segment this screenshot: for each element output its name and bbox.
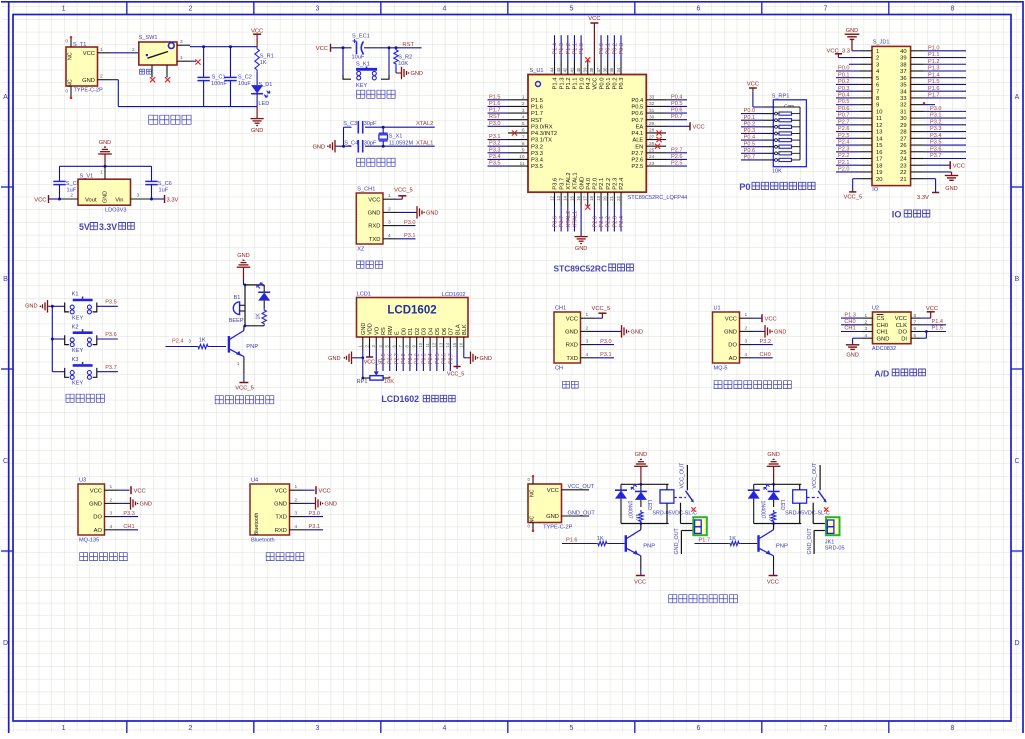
svg-text:P3.4: P3.4 [489,154,501,160]
svg-text:DO: DO [93,515,102,521]
svg-text:9: 9 [876,103,879,109]
svg-text:P1.0: P1.0 [579,43,585,55]
svg-text:P0.7: P0.7 [838,113,850,119]
svg-text:P0.4: P0.4 [671,94,683,100]
svg-text:GND: GND [575,246,587,252]
svg-text:2: 2 [388,206,391,212]
svg-text:P2.1: P2.1 [599,178,605,190]
svg-text:6: 6 [696,6,700,13]
svg-text:P3.2: P3.2 [531,144,543,150]
svg-text:C: C [1014,458,1019,465]
svg-text:P2.5: P2.5 [381,353,387,364]
svg-text:PNP: PNP [643,543,655,549]
svg-text:17: 17 [583,195,588,200]
svg-text:2: 2 [110,497,113,503]
svg-text:29: 29 [649,121,655,127]
svg-text:VCC_OUT: VCC_OUT [812,462,818,488]
svg-text:JK1: JK1 [825,539,835,545]
svg-text:35: 35 [900,83,906,89]
svg-text:TYPE-C-2P: TYPE-C-2P [543,525,572,531]
svg-text:8: 8 [950,6,954,13]
svg-text:20: 20 [876,177,882,183]
svg-text:P1.4: P1.4 [553,77,559,90]
svg-text:P2.6: P2.6 [671,154,683,160]
svg-text:3: 3 [388,220,391,226]
svg-text:12: 12 [432,342,437,347]
svg-text:CH0: CH0 [844,319,855,325]
svg-text:A: A [3,94,8,101]
svg-text:23: 23 [649,161,655,167]
svg-text:D0: D0 [401,328,407,335]
svg-text:P2.5: P2.5 [671,161,683,167]
svg-text:P2.0: P2.0 [592,216,598,228]
svg-text:P0.2: P0.2 [613,78,619,90]
svg-text:P2.7: P2.7 [838,119,850,125]
svg-text:P3.6: P3.6 [553,178,559,190]
svg-text:P1.1: P1.1 [928,52,940,58]
svg-text:6: 6 [914,326,917,332]
svg-text:21: 21 [900,177,906,183]
svg-text:GND: GND [103,191,109,203]
svg-text:S_U1: S_U1 [530,68,544,74]
svg-text:P2.0: P2.0 [593,178,599,190]
svg-text:P3.7: P3.7 [105,365,117,371]
svg-text:P0.2: P0.2 [612,43,618,55]
svg-text:P0.1: P0.1 [606,43,612,55]
svg-text:P1.7: P1.7 [928,93,940,99]
svg-text:1: 1 [586,312,589,318]
svg-text:1: 1 [237,361,240,367]
svg-text:11: 11 [876,116,882,122]
svg-text:P2.3: P2.3 [838,146,850,152]
svg-text:VCC: VCC [588,16,600,22]
svg-text:RXD: RXD [566,343,578,349]
svg-text:8: 8 [950,725,954,732]
svg-text:1K: 1K [256,313,262,320]
svg-text:GND: GND [579,177,585,190]
svg-text:GND: GND [565,330,578,336]
svg-text:P0.7: P0.7 [671,114,683,120]
svg-text:27: 27 [649,134,655,140]
svg-text:P1.7: P1.7 [531,111,543,117]
svg-text:P3.0/RX: P3.0/RX [531,124,553,130]
svg-text:P0.0: P0.0 [599,43,605,55]
svg-text:10K: 10K [398,61,408,67]
svg-text:P3.5: P3.5 [930,140,942,146]
svg-text:GND_OUT: GND_OUT [568,510,596,516]
svg-text:S_V1: S_V1 [80,174,94,180]
svg-text:P1.5: P1.5 [531,98,543,104]
svg-text:44: 44 [549,67,554,72]
svg-text:P1.0: P1.0 [928,45,940,51]
svg-text:VCC: VCC [953,163,965,169]
svg-text:GND: GND [99,140,111,146]
svg-text:34: 34 [616,67,621,72]
svg-text:1uF: 1uF [67,188,77,194]
svg-text:1: 1 [180,55,183,61]
svg-text:3: 3 [295,511,298,517]
svg-text:36: 36 [603,67,608,72]
svg-text:VCC_5: VCC_5 [235,386,254,392]
svg-text:P1.7: P1.7 [699,537,711,543]
svg-text:P0.5: P0.5 [744,141,756,147]
svg-text:1: 1 [522,95,525,101]
svg-text:100nF: 100nF [211,81,227,87]
svg-text:P1.1: P1.1 [573,78,579,90]
svg-text:CH0: CH0 [877,323,889,329]
svg-text:P0.2: P0.2 [415,353,421,364]
svg-text:P2.6: P2.6 [631,158,643,164]
svg-text:14: 14 [876,136,883,142]
svg-text:GND_OUT: GND_OUT [807,527,813,554]
svg-text:P2.7: P2.7 [631,151,643,157]
svg-text:P2.3: P2.3 [613,178,619,190]
svg-text:14: 14 [563,195,568,200]
svg-text:8: 8 [876,96,879,102]
svg-text:P3.0: P3.0 [489,121,501,127]
svg-text:P0.6: P0.6 [744,148,756,154]
svg-text:P2.5: P2.5 [631,164,643,170]
svg-text:P2.2: P2.2 [838,153,850,159]
svg-text:CH: CH [555,366,563,372]
svg-text:3.3V: 3.3V [917,195,929,201]
svg-text:P1.6: P1.6 [489,101,501,107]
svg-text:VCC: VCC [316,46,328,52]
svg-text:S_C6: S_C6 [158,181,172,187]
svg-text:GND: GND [631,330,643,336]
svg-text:Bluetooth: Bluetooth [251,538,275,544]
svg-text:VDD: VDD [368,323,374,335]
svg-text:P0.3: P0.3 [744,128,756,134]
svg-text:41: 41 [569,67,574,72]
svg-text:P0.3: P0.3 [619,78,625,90]
svg-text:2: 2 [522,101,525,107]
svg-text:SRD-05VDC-SL-C: SRD-05VDC-SL-C [785,510,830,516]
svg-text:VCC: VCC [693,125,705,131]
svg-text:25: 25 [649,148,655,154]
svg-text:P1.7: P1.7 [489,108,501,114]
svg-text:S_K1: S_K1 [356,61,370,67]
svg-text:P2.7: P2.7 [394,353,400,364]
svg-text:XZ: XZ [357,247,365,253]
svg-text:IO: IO [872,187,879,193]
svg-text:P1.3: P1.3 [559,43,565,55]
svg-text:2: 2 [745,325,748,331]
svg-text:S_EC1: S_EC1 [352,34,370,40]
svg-text:D: D [3,640,8,647]
svg-text:P2.5: P2.5 [838,133,850,139]
svg-text:P1.2: P1.2 [566,78,572,90]
svg-text:P4.0: P4.0 [586,178,592,190]
svg-text:10: 10 [876,109,882,115]
svg-text:38: 38 [900,62,906,68]
svg-text:S_SW1: S_SW1 [139,35,158,41]
svg-text:4: 4 [388,233,391,239]
svg-text:2: 2 [188,6,192,13]
svg-text:S_C1: S_C1 [212,74,226,80]
svg-text:Vout: Vout [85,198,97,204]
svg-text:GND: GND [328,356,340,362]
svg-text:22: 22 [616,195,621,200]
svg-text:39: 39 [583,67,588,72]
svg-text:U1: U1 [714,306,721,312]
svg-text:STC89C52RC_LQFP44: STC89C52RC_LQFP44 [628,195,688,201]
svg-text:CH1: CH1 [123,524,134,530]
svg-text:GND: GND [767,452,779,458]
svg-text:P0.3: P0.3 [838,86,850,92]
svg-text:VCC: VCC [90,488,102,494]
svg-text:VCC: VCC [566,316,578,322]
svg-text:IO: IO [892,210,902,220]
svg-text:D: D [1014,640,1019,647]
svg-text:P0.5: P0.5 [671,101,683,107]
svg-text:16: 16 [576,195,581,200]
svg-text:2: 2 [865,320,868,326]
svg-text:P2.4: P2.4 [619,216,625,228]
svg-text:3: 3 [745,339,748,345]
svg-text:RS: RS [381,327,387,335]
svg-text:40: 40 [900,49,906,55]
svg-text:GND: GND [325,502,337,508]
svg-text:P0.5: P0.5 [838,99,850,105]
svg-text:4: 4 [745,352,748,358]
svg-text:LCD1602: LCD1602 [387,305,436,317]
svg-text:S_C4: S_C4 [344,141,358,147]
svg-text:P4.1: P4.1 [631,131,643,137]
svg-text:P3.3: P3.3 [930,126,942,132]
svg-text:2: 2 [188,725,192,732]
svg-text:U3: U3 [79,478,86,484]
svg-text:BEEP: BEEP [229,318,244,324]
svg-text:P1.5: P1.5 [928,79,940,85]
svg-text:26: 26 [649,141,655,147]
svg-text:KEY: KEY [356,83,367,89]
svg-text:GND: GND [877,336,890,342]
svg-text:P1.4: P1.4 [553,43,559,55]
svg-text:30pF: 30pF [364,121,377,127]
svg-text:S_JD1: S_JD1 [873,40,890,46]
svg-text:MQ-5: MQ-5 [714,366,728,372]
svg-text:GND: GND [774,330,786,336]
svg-text:4: 4 [110,524,113,530]
svg-text:4: 4 [865,333,868,339]
svg-text:P2.4: P2.4 [619,177,625,190]
svg-text:P0.5: P0.5 [435,353,441,364]
svg-text:GND: GND [426,211,438,217]
svg-text:P0.6: P0.6 [631,111,643,117]
svg-text:P2.7: P2.7 [671,147,683,153]
svg-text:CS: CS [877,316,885,322]
svg-text:P0.4: P0.4 [428,353,434,364]
svg-text:4: 4 [586,352,589,358]
svg-text:GND: GND [274,502,287,508]
svg-text:S_C2: S_C2 [238,74,252,80]
svg-text:A/D: A/D [874,368,889,378]
svg-text:8: 8 [522,141,525,147]
svg-text:VO: VO [374,326,380,335]
svg-text:3: 3 [180,39,183,45]
svg-text:RP1: RP1 [357,379,368,385]
svg-text:40: 40 [576,67,581,72]
svg-text:27: 27 [900,136,906,142]
svg-text:3: 3 [865,326,868,332]
svg-text:VCC: VCC [767,580,779,586]
svg-text:XTAL2: XTAL2 [566,211,572,228]
svg-text:B: B [1015,276,1020,283]
svg-text:D3: D3 [422,328,428,335]
svg-text:XTAL1: XTAL1 [572,211,578,228]
svg-text:P1.3: P1.3 [844,312,856,318]
svg-text:S_CH1: S_CH1 [357,187,375,193]
svg-text:P0.0: P0.0 [744,108,756,114]
svg-text:3: 3 [315,6,319,13]
svg-text:E: E [395,331,401,335]
svg-text:39: 39 [900,56,906,62]
svg-text:20: 20 [603,195,608,200]
svg-text:LDO3V3: LDO3V3 [105,208,126,214]
svg-text:D2: D2 [415,328,421,335]
svg-text:10uF: 10uF [352,55,365,61]
svg-text:P0.5: P0.5 [631,105,643,111]
svg-text:1uF: 1uF [159,188,169,194]
svg-text:TXD: TXD [566,356,578,362]
svg-text:VCC: VCC [83,51,95,57]
svg-text:B1: B1 [234,295,241,301]
svg-text:P0.7: P0.7 [631,118,643,124]
svg-text:P1.4: P1.4 [932,319,944,325]
svg-text:XTAL2: XTAL2 [566,172,572,189]
svg-text:GND: GND [546,514,559,520]
svg-text:5: 5 [569,725,573,732]
svg-text:3: 3 [137,193,140,199]
svg-text:P4.3/INT2: P4.3/INT2 [531,131,557,137]
svg-text:7: 7 [823,6,827,13]
svg-text:P2.1: P2.1 [599,216,605,228]
svg-text:EA: EA [636,124,644,130]
svg-text:GND_OUT: GND_OUT [674,527,680,554]
svg-text:P0.0: P0.0 [401,353,407,364]
svg-text:2: 2 [876,56,879,62]
svg-text:P0.1: P0.1 [606,78,612,90]
svg-text:P3.3: P3.3 [489,147,501,153]
svg-text:P0.0: P0.0 [599,78,605,90]
svg-text:VCC: VCC [34,197,46,203]
svg-text:VCC: VCC [319,488,331,494]
svg-text:VCC_OUT: VCC_OUT [568,484,595,490]
svg-text:U2: U2 [872,306,879,312]
svg-text:GND: GND [846,28,858,34]
svg-text:P2.1: P2.1 [838,160,850,166]
svg-text:LCD1602: LCD1602 [442,292,466,298]
svg-text:DO: DO [898,330,907,336]
svg-text:VCC: VCC [895,316,907,322]
svg-text:10uF: 10uF [238,81,251,87]
svg-text:PNP: PNP [246,344,258,350]
svg-text:TXD: TXD [275,515,287,521]
svg-text:GND: GND [313,145,325,151]
svg-text:4: 4 [522,114,525,120]
svg-text:P3.1: P3.1 [404,233,416,239]
svg-text:8: 8 [914,313,917,319]
svg-text:13: 13 [438,342,443,347]
svg-text:3: 3 [876,62,879,68]
svg-text:GND: GND [480,356,492,362]
svg-text:D5: D5 [435,328,441,335]
svg-text:4: 4 [442,6,446,13]
svg-text:13: 13 [556,195,561,200]
svg-text:P0.1: P0.1 [838,72,850,78]
svg-text:23: 23 [900,163,906,169]
svg-text:18: 18 [589,195,594,200]
svg-text:VCC_5: VCC_5 [592,306,611,312]
svg-text:3: 3 [315,725,319,732]
svg-text:5: 5 [522,121,525,127]
svg-text:30: 30 [649,114,655,120]
svg-text:1K: 1K [260,60,267,66]
svg-text:32: 32 [900,103,906,109]
svg-text:C: C [3,458,8,465]
svg-text:P0.6: P0.6 [442,353,448,364]
svg-text:CH0: CH0 [760,352,771,358]
svg-text:P3.1/TX: P3.1/TX [531,138,552,144]
svg-text:GND: GND [251,128,263,134]
svg-text:GND: GND [635,452,647,458]
svg-text:1: 1 [100,170,103,176]
svg-text:2: 2 [70,193,73,199]
svg-text:CH1: CH1 [844,326,855,332]
svg-text:RST: RST [531,118,543,124]
svg-text:STC89C52RC: STC89C52RC [554,263,608,273]
svg-text:XTAL1: XTAL1 [573,172,579,189]
svg-text:10: 10 [418,342,423,347]
svg-text:VCC: VCC [547,488,559,494]
svg-text:7: 7 [522,134,525,140]
svg-text:GND: GND [846,353,858,359]
svg-text:P0.3: P0.3 [421,353,427,364]
svg-text:30: 30 [900,116,906,122]
svg-text:22: 22 [900,170,906,176]
svg-text:ALE: ALE [632,138,643,144]
svg-text:EN: EN [635,144,643,150]
svg-text:P3.0: P3.0 [404,220,416,226]
svg-text:1: 1 [295,484,298,490]
svg-text:24: 24 [649,154,655,160]
svg-text:6: 6 [522,128,525,134]
svg-text:18: 18 [876,163,882,169]
svg-text:1: 1 [110,484,113,490]
svg-text:D6: D6 [442,328,448,335]
svg-text:P0.4: P0.4 [744,135,756,141]
svg-text:3: 3 [586,339,589,345]
svg-text:D1: D1 [408,328,414,335]
svg-text:P3.6: P3.6 [930,146,942,152]
svg-text:AO: AO [94,528,103,534]
svg-text:P0.6: P0.6 [671,108,683,114]
svg-text:16: 16 [876,150,882,156]
svg-text:3.3V: 3.3V [167,197,179,203]
svg-text:35: 35 [609,67,614,72]
svg-text:P1.6: P1.6 [531,105,543,111]
svg-text:CH1: CH1 [877,330,889,336]
svg-text:GND: GND [361,323,367,335]
svg-text:3: 3 [522,108,525,114]
svg-text:19: 19 [876,170,882,176]
svg-text:P3.2: P3.2 [489,141,501,147]
svg-text:K2: K2 [72,324,79,330]
svg-text:7: 7 [876,89,879,95]
svg-text:1K: 1K [199,338,206,344]
svg-text:25: 25 [900,150,906,156]
